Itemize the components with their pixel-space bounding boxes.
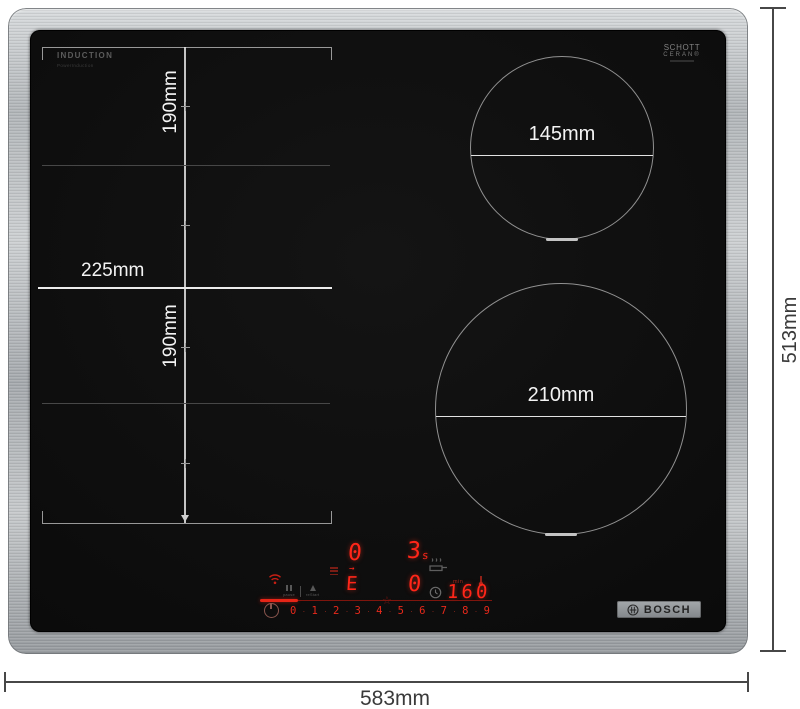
depth-dimension-line (772, 8, 774, 652)
level-5[interactable]: 5 (398, 605, 404, 617)
menu-bars-icon (330, 567, 338, 577)
front-zone-level-display: 0 (407, 572, 422, 597)
separator-dot: · (367, 606, 370, 616)
zone-front-marker (545, 533, 577, 536)
separator-dot: · (432, 606, 435, 616)
flex-display: → E (346, 565, 357, 594)
crosshair-marker (181, 343, 190, 352)
bosch-logo-icon (627, 604, 639, 616)
pause-icon (286, 585, 292, 591)
wifi-icon (268, 573, 282, 585)
separator-dot: · (345, 606, 348, 616)
crosshair-marker (181, 221, 190, 230)
flex-zone-divider-line (42, 165, 330, 166)
overall-width-label: 583mm (345, 687, 445, 709)
level-6[interactable]: 6 (419, 605, 425, 617)
small-zone-diameter-label: 145mm (471, 123, 653, 146)
level-8[interactable]: 8 (462, 605, 468, 617)
schott-line2: CERAN® (658, 52, 706, 58)
bosch-badge: BOSCH (617, 601, 701, 618)
flex-rear-depth-label: 190mm (160, 62, 180, 142)
schott-ceran-logo: SCHOTT CERAN® (658, 43, 706, 62)
flex-width-dimension-line (38, 287, 332, 289)
pan-steam-icon (428, 557, 448, 575)
clock-icon (429, 586, 442, 599)
rear-zone-level-display: 0 (347, 540, 363, 566)
large-zone-diameter-label: 210mm (436, 384, 686, 407)
fine-print-text (670, 60, 694, 62)
separator-dot: · (324, 606, 327, 616)
depth-dimension-tick-top (760, 7, 786, 9)
hob-frame: INDUCTION PowerInduction SCHOTT CERAN® 1… (8, 8, 748, 654)
width-dimension-tick-right (747, 672, 749, 692)
level-9[interactable]: 9 (484, 605, 490, 617)
power-icon[interactable] (264, 603, 279, 618)
cooking-zone-large: 210mm (435, 283, 687, 535)
restart-key[interactable]: reStart (306, 585, 319, 597)
induction-subprint: PowerInduction (57, 63, 94, 68)
separator-dot: · (410, 606, 413, 616)
pause-key[interactable]: pause (283, 585, 295, 597)
crosshair-marker (181, 459, 190, 468)
restart-label: reStart (306, 592, 319, 597)
restart-icon (310, 585, 316, 591)
overall-depth-label: 513mm (779, 290, 799, 370)
timer-value: 3 (406, 540, 421, 563)
function-keys: pause reStart (283, 585, 319, 597)
flex-zone-arrow (181, 515, 189, 522)
cooking-zone-small: 145mm (470, 56, 654, 240)
width-dimension-line (5, 681, 749, 683)
diameter-line (436, 416, 686, 417)
pause-label: pause (283, 592, 295, 597)
width-dimension-tick-left (4, 672, 6, 692)
glass-surface: INDUCTION PowerInduction SCHOTT CERAN® 1… (30, 30, 726, 632)
schott-line1: SCHOTT (658, 43, 706, 52)
separator-dot: · (475, 606, 478, 616)
diameter-line (471, 155, 653, 156)
level-1[interactable]: 1 (312, 605, 318, 617)
flex-width-label: 225mm (81, 260, 144, 282)
separator-dot: · (453, 606, 456, 616)
flex-zone-center-line (184, 47, 186, 523)
depth-dimension-tick-bottom (760, 650, 786, 652)
separator-dot: · (302, 606, 305, 616)
product-dimension-diagram: INDUCTION PowerInduction SCHOTT CERAN® 1… (0, 0, 800, 709)
level-4[interactable]: 4 (376, 605, 382, 617)
zone-front-marker (546, 238, 578, 241)
level-3[interactable]: 3 (355, 605, 361, 617)
slider-active-segment (260, 599, 298, 602)
flex-front-depth-label: 190mm (160, 296, 180, 376)
timer-display: 3 s (407, 540, 428, 563)
bosch-wordmark: BOSCH (644, 604, 691, 616)
separator-dot: · (388, 606, 391, 616)
level-2[interactable]: 2 (333, 605, 339, 617)
flex-zone-divider-line (42, 403, 330, 404)
power-level-scale[interactable]: 0 · 1 · 2 · 3 · 4 · 5 · 6 · 7 · 8 · 9 (290, 605, 490, 617)
divider (300, 586, 301, 597)
flex-zone-top-bracket (42, 47, 332, 60)
level-0[interactable]: 0 (290, 605, 296, 617)
crosshair-marker (181, 102, 190, 111)
flex-display-value: E (345, 575, 358, 594)
level-7[interactable]: 7 (441, 605, 447, 617)
